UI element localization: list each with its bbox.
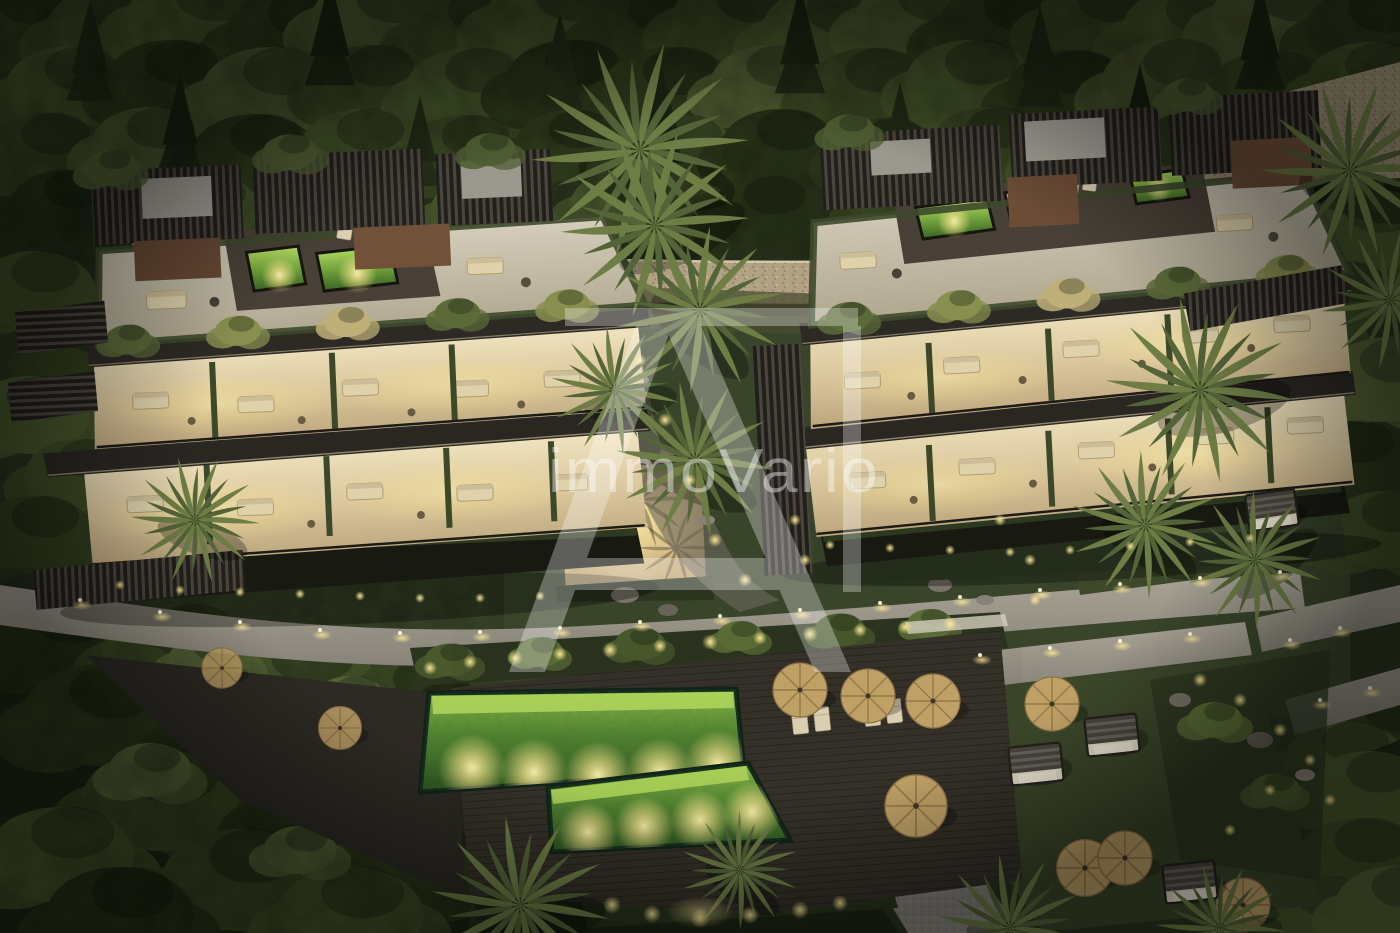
monogram-crossbar [567, 558, 798, 590]
scene-canvas: immoVario [0, 0, 1400, 933]
watermark-text: immoVario [548, 437, 880, 506]
aerial-dusk-render: immoVario [0, 0, 1400, 933]
monogram-top-bar [565, 308, 858, 326]
